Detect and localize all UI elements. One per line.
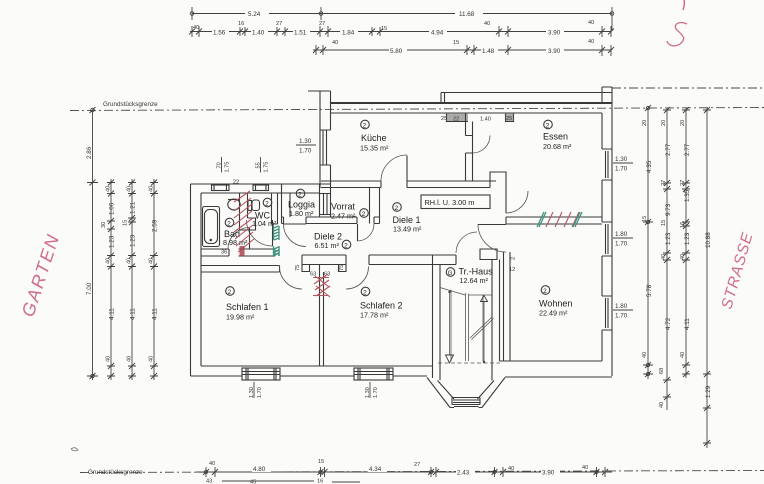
svg-text:13.49 m²: 13.49 m² <box>393 225 422 234</box>
svg-text:1.70: 1.70 <box>257 387 263 398</box>
svg-text:7.00: 7.00 <box>86 282 93 295</box>
svg-text:1.40: 1.40 <box>252 30 265 37</box>
svg-text:40: 40 <box>582 465 588 471</box>
svg-text:Diele 1: Diele 1 <box>393 215 421 225</box>
svg-text:16: 16 <box>317 479 323 484</box>
svg-text:1.70: 1.70 <box>615 313 628 320</box>
svg-text:15.35 m²: 15.35 m² <box>360 144 389 153</box>
svg-text:2: 2 <box>363 122 367 129</box>
svg-text:2: 2 <box>298 191 302 198</box>
svg-text:15: 15 <box>661 220 667 226</box>
svg-text:30: 30 <box>101 222 107 228</box>
svg-text:15: 15 <box>453 40 459 46</box>
svg-text:2.47 m²: 2.47 m² <box>331 212 356 221</box>
svg-text:Diele 2: Diele 2 <box>314 232 342 242</box>
svg-text:2: 2 <box>265 200 269 207</box>
svg-text:40: 40 <box>106 356 112 362</box>
svg-text:Tr.-Haus: Tr.-Haus <box>459 267 494 277</box>
svg-text:1.80 m²: 1.80 m² <box>289 209 314 218</box>
svg-text:1.75: 1.75 <box>224 162 230 173</box>
svg-text:2: 2 <box>543 288 547 295</box>
svg-text:25: 25 <box>506 116 512 122</box>
svg-text:3.90: 3.90 <box>548 30 561 37</box>
svg-text:22: 22 <box>233 180 239 186</box>
svg-text:Küche: Küche <box>361 133 387 143</box>
svg-text:2: 2 <box>363 289 367 296</box>
svg-text:1.75: 1.75 <box>263 162 269 173</box>
svg-text:4.34: 4.34 <box>369 466 382 473</box>
svg-text:4.35: 4.35 <box>646 160 653 173</box>
svg-text:4.11: 4.11 <box>684 318 691 330</box>
svg-text:27: 27 <box>680 180 686 186</box>
svg-text:27: 27 <box>319 21 325 27</box>
svg-text:4.94: 4.94 <box>431 30 444 37</box>
svg-text:2: 2 <box>546 122 550 129</box>
svg-text:20: 20 <box>680 120 686 126</box>
svg-text:10.88: 10.88 <box>705 232 712 248</box>
svg-text:16: 16 <box>680 222 686 228</box>
svg-text:40: 40 <box>106 186 112 192</box>
svg-text:1.23: 1.23 <box>684 232 691 245</box>
svg-text:55: 55 <box>255 162 261 168</box>
svg-text:40: 40 <box>588 39 594 45</box>
svg-text:1.51: 1.51 <box>294 30 307 37</box>
svg-text:1.06: 1.06 <box>109 202 116 215</box>
svg-text:43: 43 <box>206 479 212 484</box>
svg-text:1.29: 1.29 <box>705 385 712 398</box>
svg-text:15: 15 <box>642 216 648 222</box>
svg-text:40: 40 <box>588 20 594 26</box>
svg-text:17.78 m²: 17.78 m² <box>360 311 389 320</box>
svg-text:40: 40 <box>149 186 155 192</box>
svg-text:2.86: 2.86 <box>86 146 93 159</box>
svg-text:2.59: 2.59 <box>152 219 159 232</box>
svg-text:5.24: 5.24 <box>248 11 261 18</box>
svg-text:1.80: 1.80 <box>615 231 628 238</box>
svg-text:27: 27 <box>414 462 420 468</box>
svg-text:1.70: 1.70 <box>299 148 312 155</box>
svg-text:11.68: 11.68 <box>459 11 475 18</box>
svg-text:45: 45 <box>250 480 256 484</box>
svg-text:2: 2 <box>511 257 517 260</box>
svg-text:36: 36 <box>221 250 227 256</box>
svg-text:4.11: 4.11 <box>152 308 159 320</box>
svg-text:2: 2 <box>227 220 231 227</box>
svg-text:3.90: 3.90 <box>542 470 555 477</box>
svg-text:40: 40 <box>149 258 155 264</box>
svg-text:2: 2 <box>395 205 399 212</box>
svg-text:1.23: 1.23 <box>130 234 137 247</box>
svg-text:40: 40 <box>106 258 112 264</box>
svg-text:40: 40 <box>659 402 665 408</box>
svg-text:3.90: 3.90 <box>548 48 561 55</box>
svg-text:Grundstücksgrenze: Grundstücksgrenze <box>88 469 143 476</box>
svg-text:20: 20 <box>661 120 667 126</box>
svg-text:75: 75 <box>295 265 301 271</box>
svg-text:Loggia: Loggia <box>288 200 315 210</box>
svg-text:40: 40 <box>508 466 514 472</box>
svg-text:40: 40 <box>661 254 667 260</box>
svg-text:40: 40 <box>127 186 133 192</box>
svg-text:1.70: 1.70 <box>373 387 379 398</box>
svg-text:22: 22 <box>453 117 459 123</box>
svg-text:1.21: 1.21 <box>130 201 137 214</box>
svg-text:19.98 m²: 19.98 m² <box>226 313 255 322</box>
svg-text:1.30: 1.30 <box>365 387 371 398</box>
svg-text:RH.l. U. 3.00 m: RH.l. U. 3.00 m <box>425 198 475 207</box>
svg-text:40: 40 <box>332 40 338 46</box>
svg-text:1.23: 1.23 <box>109 235 116 248</box>
svg-text:20.68 m²: 20.68 m² <box>543 142 572 151</box>
svg-text:15: 15 <box>123 220 129 226</box>
svg-text:2: 2 <box>362 211 366 218</box>
svg-text:1.30: 1.30 <box>299 138 312 145</box>
svg-text:5.80: 5.80 <box>390 48 403 55</box>
svg-text:40: 40 <box>127 258 133 264</box>
svg-text:15: 15 <box>318 459 324 465</box>
svg-text:5.78: 5.78 <box>646 284 653 297</box>
svg-text:40: 40 <box>642 352 648 358</box>
svg-text:15: 15 <box>381 26 387 32</box>
svg-text:40: 40 <box>680 254 686 260</box>
svg-text:68: 68 <box>659 368 665 374</box>
svg-text:40: 40 <box>209 461 215 467</box>
svg-text:40: 40 <box>193 25 199 31</box>
svg-text:2: 2 <box>228 289 232 296</box>
svg-text:1.40: 1.40 <box>480 117 491 123</box>
svg-text:1.30: 1.30 <box>249 387 255 398</box>
svg-text:27: 27 <box>661 180 667 186</box>
svg-text:Grundstücksgrenze: Grundstücksgrenze <box>103 101 158 108</box>
svg-text:4.11: 4.11 <box>109 308 116 320</box>
svg-text:1.56: 1.56 <box>213 30 226 37</box>
svg-text:27: 27 <box>276 21 282 27</box>
svg-text:Schlafen 2: Schlafen 2 <box>360 301 403 311</box>
svg-text:2: 2 <box>344 242 348 249</box>
svg-text:9.73: 9.73 <box>665 203 672 216</box>
svg-text:22.49 m²: 22.49 m² <box>539 309 568 318</box>
svg-text:40: 40 <box>127 356 133 362</box>
svg-text:1.35: 1.35 <box>684 189 691 202</box>
svg-text:1.70: 1.70 <box>615 241 628 248</box>
svg-text:25: 25 <box>441 116 447 122</box>
svg-text:16: 16 <box>238 21 244 27</box>
svg-text:12.64 m²: 12.64 m² <box>460 276 489 285</box>
svg-text:G: G <box>448 270 453 277</box>
svg-text:1.30: 1.30 <box>615 156 628 163</box>
svg-text:4.80: 4.80 <box>253 466 266 473</box>
svg-text:1.80: 1.80 <box>615 303 628 310</box>
svg-text:2.43: 2.43 <box>457 470 470 477</box>
svg-text:1.70: 1.70 <box>615 166 628 173</box>
svg-text:1.48: 1.48 <box>482 48 495 55</box>
svg-text:Schlafen 1: Schlafen 1 <box>226 302 269 312</box>
svg-text:75: 75 <box>339 265 345 271</box>
svg-text:Wohnen: Wohnen <box>539 299 572 309</box>
svg-text:70: 70 <box>216 162 222 168</box>
svg-text:2.77: 2.77 <box>665 143 672 156</box>
svg-text:Essen: Essen <box>543 132 568 142</box>
svg-text:40: 40 <box>484 21 490 27</box>
svg-text:4.11: 4.11 <box>130 308 137 320</box>
svg-text:2.77: 2.77 <box>684 143 691 156</box>
svg-text:Vorrat: Vorrat <box>331 202 356 212</box>
svg-text:1.84: 1.84 <box>342 30 355 37</box>
svg-text:20: 20 <box>642 120 648 126</box>
svg-text:12: 12 <box>509 267 515 273</box>
svg-text:6.51 m²: 6.51 m² <box>315 241 340 250</box>
svg-text:40: 40 <box>680 352 686 358</box>
svg-text:1.23: 1.23 <box>665 232 672 245</box>
svg-text:40: 40 <box>149 356 155 362</box>
svg-text:4.72: 4.72 <box>665 317 672 330</box>
